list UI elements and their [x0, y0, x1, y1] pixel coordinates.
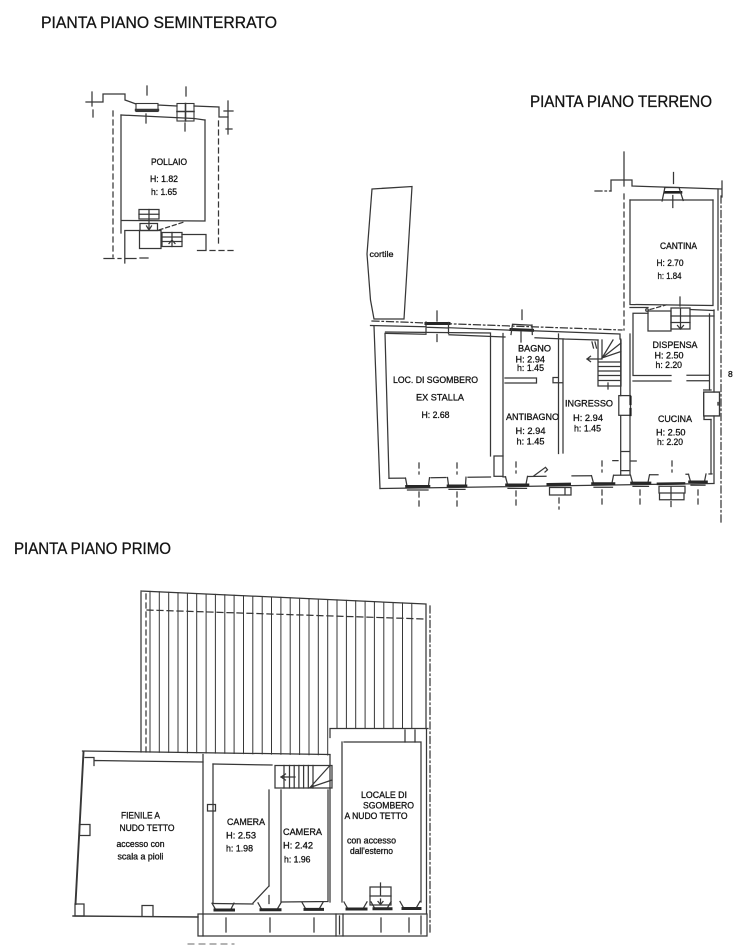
svg-text:POLLAIO: POLLAIO [151, 157, 187, 168]
svg-text:H: 2.53: H: 2.53 [226, 831, 256, 841]
svg-text:h: 1.84: h: 1.84 [658, 271, 682, 281]
svg-text:H: 2.50: H: 2.50 [655, 351, 684, 361]
svg-text:PIANTA PIANO SEMINTERRATO: PIANTA PIANO SEMINTERRATO [41, 14, 277, 32]
svg-text:H: 1.82: H: 1.82 [150, 174, 178, 184]
svg-text:h: 1.98: h: 1.98 [226, 844, 253, 854]
svg-text:scala a pioli: scala a pioli [118, 852, 164, 862]
svg-text:CANTINA: CANTINA [660, 241, 698, 252]
svg-text:8: 8 [728, 369, 733, 379]
svg-text:CAMERA: CAMERA [227, 817, 266, 828]
svg-text:accesso con: accesso con [117, 839, 165, 849]
svg-text:h: 1.45: h: 1.45 [574, 424, 601, 434]
svg-text:ANTIBAGNO: ANTIBAGNO [506, 412, 559, 423]
svg-text:h: 1.45: h: 1.45 [517, 437, 545, 447]
svg-text:con accesso: con accesso [347, 836, 396, 846]
svg-text:H: 2.70: H: 2.70 [657, 258, 684, 268]
svg-text:H: 2.68: H: 2.68 [422, 410, 450, 420]
svg-text:BAGNO: BAGNO [518, 344, 551, 355]
svg-text:H: 2.50: H: 2.50 [656, 428, 686, 438]
svg-text:PIANTA PIANO PRIMO: PIANTA PIANO PRIMO [14, 540, 171, 558]
svg-text:H: 2.94: H: 2.94 [516, 426, 546, 436]
svg-text:dall'esterno: dall'esterno [350, 846, 393, 856]
svg-text:h: 1.65: h: 1.65 [151, 187, 177, 197]
svg-text:h: 1.96: h: 1.96 [284, 855, 311, 865]
svg-text:SGOMBERO: SGOMBERO [363, 801, 414, 812]
svg-text:LOC. DI SGOMBERO: LOC. DI SGOMBERO [393, 375, 478, 386]
svg-text:LOCALE DI: LOCALE DI [361, 790, 407, 801]
svg-text:cortile: cortile [370, 249, 394, 259]
svg-text:INGRESSO: INGRESSO [565, 399, 613, 410]
svg-text:H: 2.42: H: 2.42 [283, 841, 313, 851]
svg-text:NUDO TETTO: NUDO TETTO [120, 823, 175, 833]
svg-text:h: 2.20: h: 2.20 [656, 360, 683, 370]
svg-text:H: 2.94: H: 2.94 [573, 413, 603, 423]
svg-text:EX STALLA: EX STALLA [416, 393, 465, 404]
svg-text:h: 1.45: h: 1.45 [517, 363, 544, 373]
svg-text:PIANTA PIANO TERRENO: PIANTA PIANO TERRENO [530, 93, 712, 111]
svg-text:A NUDO TETTO: A NUDO TETTO [345, 811, 408, 822]
svg-text:DISPENSA: DISPENSA [653, 340, 699, 351]
svg-text:CUCINA: CUCINA [658, 414, 693, 425]
svg-text:CAMERA: CAMERA [283, 827, 323, 838]
svg-text:h: 2.20: h: 2.20 [657, 437, 683, 447]
svg-text:FIENILE A: FIENILE A [121, 811, 161, 821]
